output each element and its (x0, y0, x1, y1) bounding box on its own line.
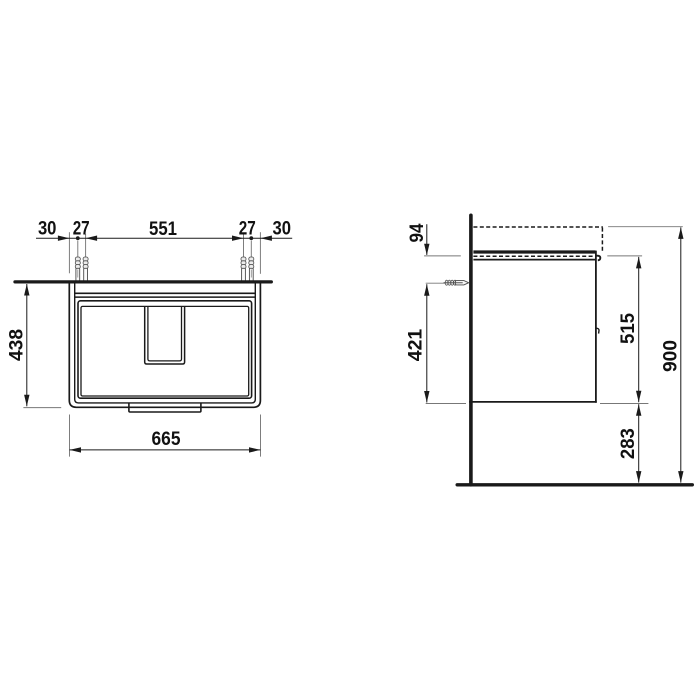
svg-text:438: 438 (5, 329, 27, 361)
svg-text:30: 30 (273, 218, 292, 240)
svg-text:283: 283 (617, 428, 639, 459)
svg-text:515: 515 (617, 313, 639, 344)
svg-text:27: 27 (73, 218, 90, 240)
svg-text:421: 421 (405, 329, 427, 362)
svg-text:900: 900 (660, 340, 682, 372)
svg-text:94: 94 (406, 223, 428, 242)
svg-text:665: 665 (152, 428, 181, 450)
svg-text:30: 30 (38, 218, 57, 240)
svg-text:27: 27 (239, 218, 256, 240)
svg-text:551: 551 (149, 218, 177, 240)
